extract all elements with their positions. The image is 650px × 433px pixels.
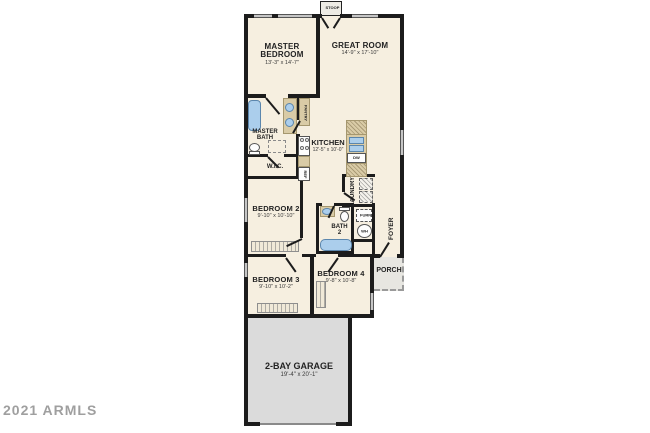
dw-label: DW	[352, 156, 362, 160]
window	[254, 14, 272, 18]
wall	[340, 14, 352, 18]
toilet-tank	[249, 151, 260, 155]
wall	[354, 239, 374, 242]
bedroom2-label: BEDROOM 2 9'-10" x 10'-10"	[247, 205, 305, 220]
wall	[397, 254, 404, 258]
wall	[372, 203, 375, 258]
room-name: MASTER BEDROOM	[250, 43, 314, 60]
laundry-label: LAUNDRY	[350, 177, 359, 206]
wall	[316, 203, 319, 254]
ref-label: REF	[301, 171, 307, 178]
burner	[305, 138, 309, 142]
wall	[244, 318, 248, 426]
foyer-label: FOYER	[388, 213, 398, 245]
wall	[316, 251, 354, 254]
window	[244, 263, 248, 277]
bath2-tub-icon	[320, 239, 352, 251]
kitchen-sink-icon	[349, 137, 364, 144]
sink-icon	[285, 118, 294, 127]
wall	[284, 154, 298, 157]
wall	[244, 254, 286, 257]
window	[370, 293, 374, 310]
bedroom4-label: BEDROOM 4 9'-8" x 10'-8"	[314, 270, 368, 285]
floor-plan: PANTRY REF DW FURN WH STOOP MASTER BEDRO…	[0, 0, 650, 433]
wall	[316, 14, 320, 98]
wall	[348, 318, 352, 426]
bedroom4-closet	[316, 281, 326, 308]
room-dims: 12'-5" x 10'-0"	[311, 148, 345, 153]
stoop-label: STOOP	[326, 6, 337, 10]
window	[352, 14, 378, 18]
room-name: BEDROOM 3	[247, 276, 305, 284]
room-dims: 9'-8" x 10'-8"	[314, 279, 368, 285]
window	[400, 130, 404, 155]
wall	[338, 254, 372, 257]
bath2-label: BATH 2	[330, 224, 349, 237]
room-name: BEDROOM 4	[314, 270, 368, 278]
wall	[244, 314, 374, 318]
room-dims: 19'-4" x 20'-1"	[258, 372, 340, 378]
room-dims: 14'-9" x 17'-10"	[326, 51, 394, 57]
wall	[244, 422, 260, 426]
wall	[244, 94, 266, 98]
toilet-icon	[340, 211, 349, 222]
wall	[244, 176, 302, 179]
great-room-label: GREAT ROOM 14'-9" x 17'-10"	[326, 42, 394, 57]
kitchen-label: KITCHEN 12'-5" x 10'-0"	[311, 139, 345, 153]
burner	[305, 146, 309, 150]
room-dims: 13'-3" x 14'-7"	[250, 61, 314, 67]
island-counter	[346, 120, 367, 135]
room-name: 2-BAY GARAGE	[258, 362, 340, 371]
garage-label: 2-BAY GARAGE 19'-4" x 20'-1"	[258, 362, 340, 379]
armls-watermark: 2021 ARMLS	[3, 402, 97, 418]
master-bath-label: MASTER BATH	[250, 129, 280, 142]
wall	[310, 257, 314, 314]
pantry-label: PANTRY	[302, 105, 308, 119]
sink-icon	[285, 103, 294, 112]
furn-label: FURN	[360, 213, 368, 218]
garage-door-line	[260, 423, 336, 425]
burner	[300, 138, 304, 142]
dryer-icon	[359, 191, 373, 203]
window	[278, 14, 312, 18]
wic-label: W.I.C.	[262, 164, 288, 170]
shower-outline	[268, 140, 286, 153]
room-name: GREAT ROOM	[326, 42, 394, 50]
room-dims: 9'-10" x 10'-10"	[247, 214, 305, 220]
wall	[336, 422, 352, 426]
washer-icon	[359, 178, 373, 190]
master-bedroom-label: MASTER BEDROOM 13'-3" x 14'-7"	[250, 43, 314, 67]
wh-label: WH	[361, 229, 369, 234]
bedroom3-label: BEDROOM 3 9'-10" x 10'-2"	[247, 276, 305, 291]
master-tub-icon	[248, 100, 261, 131]
room-name: KITCHEN	[311, 139, 345, 147]
bedroom3-closet	[257, 303, 298, 313]
porch-label: PORCH	[373, 267, 405, 274]
room-name: BEDROOM 2	[247, 205, 305, 213]
room-dims: 9'-10" x 10'-2"	[247, 285, 305, 291]
kitchen-sink-icon	[349, 145, 364, 152]
kitchen-counter	[298, 156, 310, 167]
island-counter	[346, 163, 367, 177]
burner	[300, 146, 304, 150]
